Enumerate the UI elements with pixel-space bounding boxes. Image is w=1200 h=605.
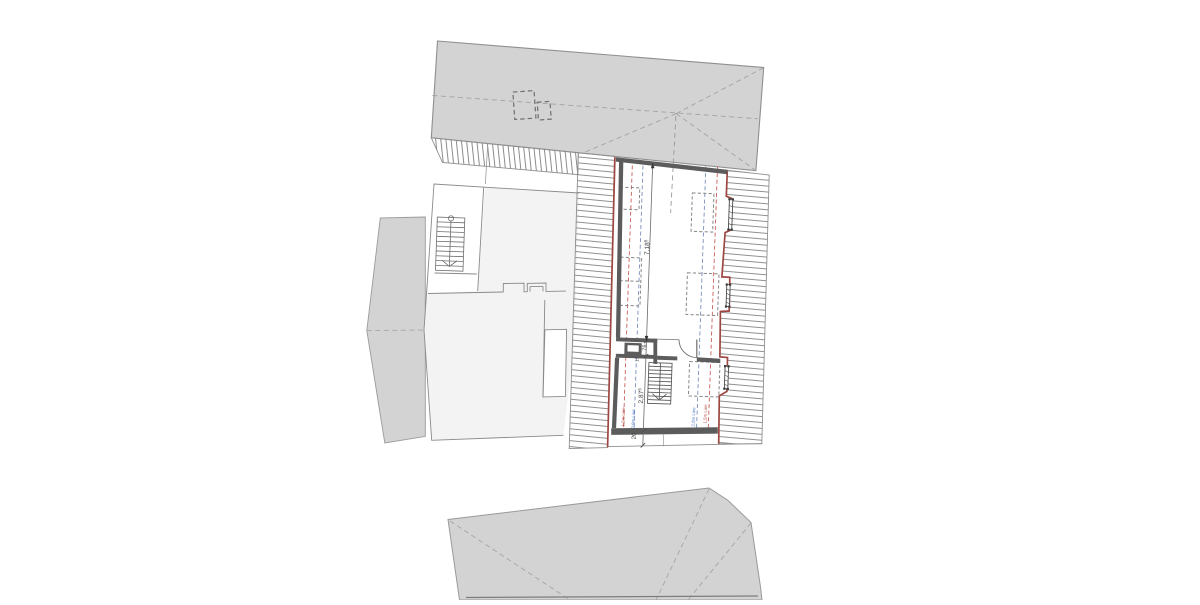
svg-text:76: 76	[642, 344, 648, 350]
svg-text:2,875: 2,875	[637, 388, 646, 404]
svg-text:2,0m Line: 2,0m Line	[630, 409, 636, 429]
svg-text:20: 20	[631, 432, 638, 440]
svg-text:1,5m Line: 1,5m Line	[702, 404, 708, 424]
svg-text:2,0m Line: 2,0m Line	[691, 407, 697, 427]
svg-text:17: 17	[634, 356, 639, 362]
svg-text:1,5m Line: 1,5m Line	[620, 407, 626, 427]
